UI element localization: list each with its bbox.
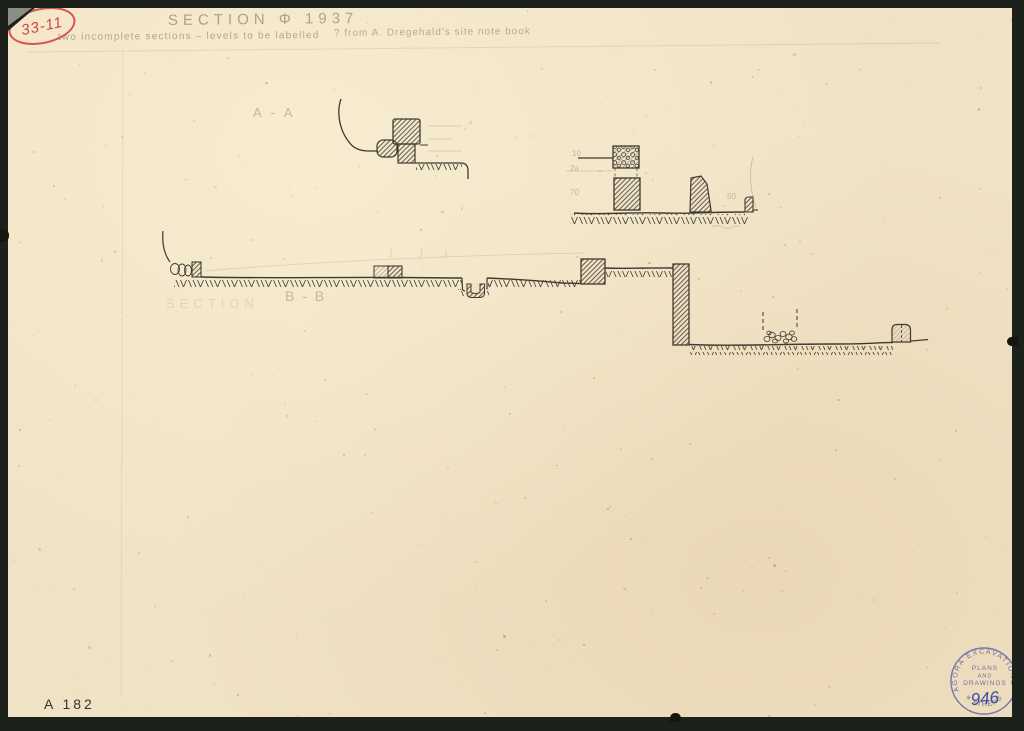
scan-edge-mark bbox=[0, 229, 9, 242]
stamp-line1: PLANS bbox=[972, 665, 998, 672]
scanned-sheet-background: { "sheet": { "title": "SECTION Φ 1937", … bbox=[0, 0, 1024, 731]
scan-edge-mark bbox=[670, 713, 681, 722]
stamp-number: 946 bbox=[970, 688, 1000, 709]
margin-lines bbox=[28, 43, 940, 696]
section-b-label-prefix: SECTION bbox=[166, 296, 259, 311]
paper-sheet: 10 2a 70 50 bbox=[8, 8, 1012, 717]
rubble-mound bbox=[764, 331, 797, 343]
section-b-label: B - B bbox=[285, 288, 326, 304]
stamp-line3: DRAWINGS bbox=[963, 680, 1007, 687]
pencil-note-right: ? from A. Dregehald's site note book bbox=[334, 26, 531, 39]
section-drawings: 10 2a 70 50 bbox=[8, 8, 1012, 717]
pencil-note-left: two incomplete sections – levels to be l… bbox=[58, 30, 320, 43]
section-a-label: A - A bbox=[253, 105, 295, 120]
pencil-level-mark: 2a bbox=[570, 164, 579, 173]
pencil-level-mark: 50 bbox=[727, 192, 736, 201]
pencil-level-mark: 10 bbox=[572, 149, 581, 158]
trial-section-drawing: 10 2a 70 50 bbox=[566, 146, 758, 229]
pencil-level-mark: 70 bbox=[570, 188, 579, 197]
section-b-drawing bbox=[163, 231, 928, 355]
inventory-number: A 182 bbox=[44, 696, 95, 712]
sheet-title: SECTION Φ 1937 bbox=[168, 10, 359, 29]
red-catalog-number: 33-11 bbox=[20, 13, 65, 38]
scan-edge-mark bbox=[1007, 337, 1018, 346]
section-a-drawing bbox=[339, 99, 468, 179]
agora-archive-stamp: AGORA EXCAVATIONS ✳ ATHENS ✳ PLANS AND D… bbox=[919, 616, 1012, 717]
stamp-line2: AND bbox=[978, 674, 993, 680]
